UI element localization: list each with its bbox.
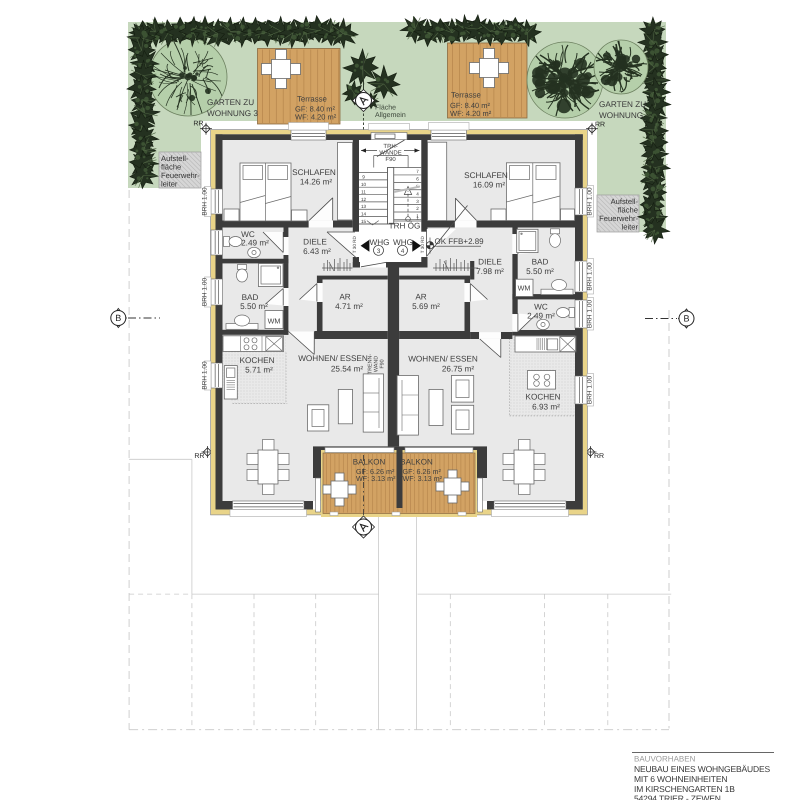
svg-text:13: 13 [361, 204, 367, 209]
svg-text:6.93 m²: 6.93 m² [532, 403, 560, 412]
svg-text:6: 6 [416, 177, 419, 182]
svg-text:Terrasse: Terrasse [451, 91, 481, 100]
svg-text:WOHNUNG 3: WOHNUNG 3 [207, 109, 258, 118]
svg-text:GARTEN ZU: GARTEN ZU [207, 98, 254, 107]
svg-text:T 30 RD: T 30 RD [352, 236, 357, 254]
svg-text:WOHNEN/ ESSEN: WOHNEN/ ESSEN [298, 354, 368, 363]
svg-text:F90: F90 [380, 359, 386, 368]
svg-text:B: B [115, 313, 121, 323]
svg-text:BRH 1.00: BRH 1.00 [202, 187, 209, 216]
svg-text:BRH 1.00: BRH 1.00 [587, 376, 594, 405]
svg-text:2.49 m²: 2.49 m² [527, 312, 555, 321]
svg-text:RR: RR [194, 453, 204, 460]
svg-text:5.50 m²: 5.50 m² [526, 267, 554, 276]
svg-text:AR: AR [339, 293, 350, 302]
svg-text:10: 10 [361, 182, 367, 187]
svg-text:7: 7 [416, 169, 419, 174]
svg-text:BALKON: BALKON [353, 458, 386, 467]
svg-text:12: 12 [361, 197, 367, 202]
svg-text:T 30 RD: T 30 RD [420, 236, 425, 254]
svg-text:14: 14 [361, 211, 367, 216]
svg-text:MIT 6 WOHNEINHEITEN: MIT 6 WOHNEINHEITEN [634, 774, 727, 784]
svg-text:AR: AR [415, 293, 426, 302]
svg-text:4: 4 [416, 191, 419, 196]
svg-text:16.09 m²: 16.09 m² [473, 181, 506, 190]
svg-text:WOHNEN/ ESSEN: WOHNEN/ ESSEN [408, 355, 478, 364]
svg-text:3: 3 [416, 199, 419, 204]
svg-text:4: 4 [401, 248, 405, 255]
svg-text:1: 1 [416, 216, 419, 221]
svg-text:Fläche: Fläche [375, 104, 396, 112]
svg-text:KOCHEN: KOCHEN [525, 393, 560, 402]
svg-text:RR: RR [594, 453, 604, 460]
svg-text:7.98 m²: 7.98 m² [476, 267, 504, 276]
svg-text:WF: 3.13 m²: WF: 3.13 m² [403, 474, 443, 483]
svg-text:TRH-: TRH- [383, 143, 397, 150]
svg-text:4.71 m²: 4.71 m² [335, 302, 363, 311]
svg-text:WM: WM [518, 284, 531, 293]
svg-text:BRH 1.00: BRH 1.00 [587, 262, 594, 291]
svg-text:26.75 m²: 26.75 m² [442, 365, 475, 374]
svg-text:WF: 3.13 m²: WF: 3.13 m² [356, 474, 396, 483]
svg-text:TRH ÖG: TRH ÖG [389, 222, 421, 231]
svg-text:Allgemein: Allgemein [375, 111, 406, 119]
svg-text:WÄNDE: WÄNDE [379, 149, 401, 157]
svg-text:DIELE: DIELE [303, 238, 327, 247]
svg-text:BRH 1.00: BRH 1.00 [587, 300, 594, 329]
svg-text:leiter: leiter [161, 180, 178, 189]
svg-text:5.69 m²: 5.69 m² [412, 302, 440, 311]
svg-text:BAD: BAD [242, 293, 259, 302]
svg-text:SCHLAFEN: SCHLAFEN [464, 171, 508, 180]
svg-text:6.43 m²: 6.43 m² [303, 247, 331, 256]
svg-text:25.54 m²: 25.54 m² [331, 365, 364, 374]
svg-text:3: 3 [377, 248, 381, 255]
svg-text:KOCHEN: KOCHEN [239, 356, 274, 365]
svg-text:54294 TRIER - ZEWEN: 54294 TRIER - ZEWEN [634, 794, 721, 800]
svg-text:RR: RR [595, 122, 605, 129]
svg-text:BRH 1.00: BRH 1.00 [587, 187, 594, 216]
svg-text:OK FFB+2.89: OK FFB+2.89 [435, 237, 485, 246]
svg-text:NEUBAU EINES WOHNGEBÄUDES: NEUBAU EINES WOHNGEBÄUDES [634, 764, 771, 774]
svg-text:2: 2 [416, 206, 419, 211]
svg-text:GARTEN ZU: GARTEN ZU [599, 100, 646, 109]
svg-text:BAD: BAD [532, 258, 549, 267]
svg-text:5.71 m²: 5.71 m² [245, 366, 273, 375]
svg-text:BRH 1.00: BRH 1.00 [202, 278, 209, 307]
svg-text:RR: RR [193, 121, 203, 128]
svg-text:11: 11 [361, 189, 366, 194]
svg-text:14.26 m²: 14.26 m² [300, 178, 333, 187]
svg-text:WOHNUNG: WOHNUNG [599, 111, 643, 120]
svg-text:BALKON: BALKON [400, 458, 433, 467]
svg-text:BRH 1.00: BRH 1.00 [202, 361, 209, 390]
svg-text:SCHLAFEN: SCHLAFEN [292, 168, 336, 177]
svg-text:WF: 4.20 m²: WF: 4.20 m² [450, 109, 492, 118]
svg-text:F90: F90 [385, 156, 396, 163]
svg-text:2.49 m²: 2.49 m² [241, 239, 269, 248]
svg-text:9: 9 [362, 175, 365, 180]
svg-text:5.50 m²: 5.50 m² [240, 302, 268, 311]
svg-text:WC: WC [534, 303, 548, 312]
svg-text:DIELE: DIELE [478, 258, 502, 267]
svg-text:BAUVORHABEN: BAUVORHABEN [634, 755, 696, 764]
svg-text:B: B [683, 314, 689, 324]
svg-text:leiter: leiter [622, 223, 639, 232]
svg-text:IM KIRSCHENGARTEN 1B: IM KIRSCHENGARTEN 1B [634, 784, 735, 794]
svg-text:Terrasse: Terrasse [297, 95, 327, 104]
svg-text:15: 15 [361, 219, 367, 224]
svg-text:WF: 4.20 m²: WF: 4.20 m² [295, 113, 337, 122]
svg-text:WM: WM [268, 317, 281, 326]
